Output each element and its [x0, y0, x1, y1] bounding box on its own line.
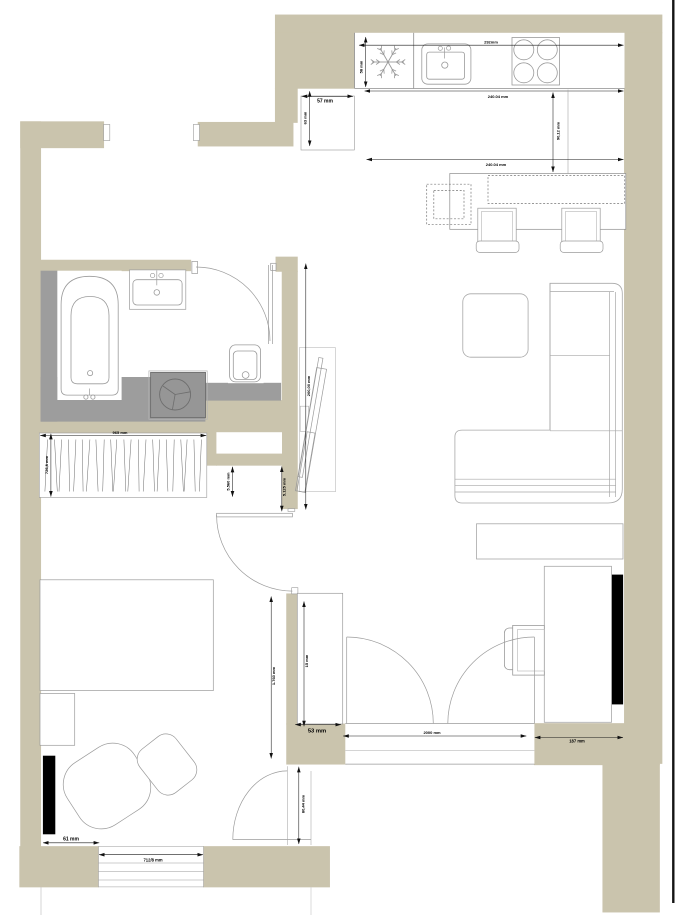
- svg-text:240.04 mm: 240.04 mm: [488, 94, 509, 99]
- svg-text:58 mm: 58 mm: [359, 60, 364, 73]
- svg-text:200,00 mm: 200,00 mm: [306, 375, 311, 396]
- svg-text:965 mm: 965 mm: [113, 430, 128, 435]
- svg-text:5.125 mm: 5.125 mm: [281, 477, 286, 496]
- svg-text:90,12 mm: 90,12 mm: [556, 121, 561, 140]
- svg-text:240.04 mm: 240.04 mm: [486, 162, 507, 167]
- svg-text:5.560 mm: 5.560 mm: [226, 472, 231, 491]
- svg-text:726,8 mm: 726,8 mm: [44, 455, 49, 474]
- svg-text:57 mm: 57 mm: [317, 99, 333, 105]
- svg-text:63 mm: 63 mm: [303, 111, 308, 124]
- svg-text:61 mm: 61 mm: [63, 837, 79, 843]
- svg-text:187 mm: 187 mm: [569, 739, 585, 744]
- svg-text:53 mm: 53 mm: [308, 729, 326, 735]
- svg-text:15 mm: 15 mm: [304, 654, 309, 667]
- svg-text:2000 mm: 2000 mm: [423, 730, 441, 735]
- svg-text:712/8 mm: 712/8 mm: [143, 858, 162, 863]
- svg-text:80,44 mm: 80,44 mm: [301, 794, 306, 813]
- svg-text:292mm: 292mm: [484, 40, 498, 45]
- svg-text:1.760 mm: 1.760 mm: [271, 666, 276, 685]
